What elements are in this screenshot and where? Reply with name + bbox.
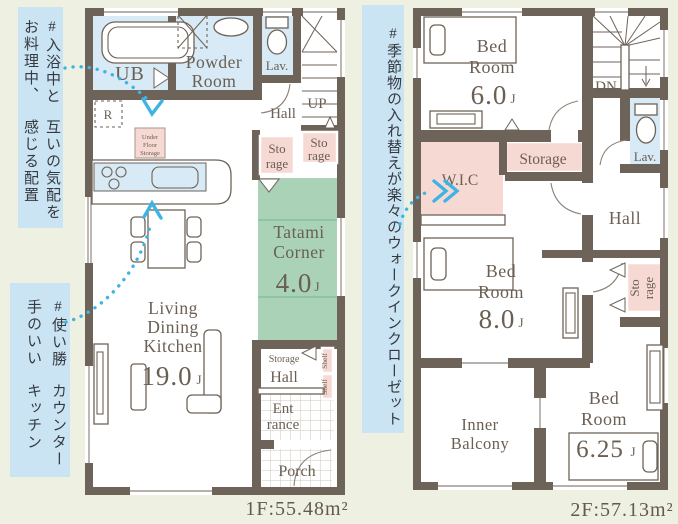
label-ldk-size: 19.0 <box>141 361 192 391</box>
label-storage-a-1: Sto <box>268 141 285 156</box>
dresser2-icon <box>647 345 663 410</box>
label-bed1-unit: J <box>510 91 515 106</box>
label-tatami-unit: J <box>314 279 319 294</box>
label-bed2-size: 8.0 <box>479 304 516 334</box>
label-storage-b-2: rage <box>308 148 331 163</box>
label-bed2-2: Room <box>478 282 524 302</box>
tv-board-icon <box>94 344 108 424</box>
floorplan-1f: UB Powder Room Lav. Hall UP Sto rage Sto… <box>85 8 349 520</box>
label-powder-1: Powder <box>186 52 242 72</box>
caption-1f-area: 1F:55.48m² <box>245 498 348 520</box>
stairs-rail <box>621 45 629 90</box>
label-bed3-2: Room <box>581 409 627 429</box>
label-up: UP <box>307 96 326 112</box>
label-ldk-unit: J <box>196 372 201 387</box>
label-dn: DN <box>595 79 617 95</box>
label-storage-side-2: rage <box>641 277 656 300</box>
label-storage-a-2: rage <box>266 156 289 171</box>
label-tatami-size: 4.0 <box>276 268 313 298</box>
label-tatami-2: Corner <box>273 242 325 262</box>
floorplan-page: #入浴中とお料理中、 互いの気配を感じる配置 #使い勝手のいい カウンターキッチ… <box>0 0 678 524</box>
label-storage-side-1: Sto <box>627 279 642 296</box>
label-bed2-unit: J <box>518 315 523 330</box>
label-balcony-2: Balcony <box>451 434 510 453</box>
label-porch: Porch <box>278 463 315 480</box>
entrance-step <box>258 388 324 394</box>
label-ub: UB <box>115 63 145 85</box>
label-hall-lower: Hall <box>270 369 298 386</box>
label-wic: W.I.C <box>442 172 478 189</box>
label-bed1-size: 6.0 <box>471 80 508 110</box>
label-bed3-size: 6.25 <box>576 436 624 463</box>
toilet-2f-icon <box>635 104 657 143</box>
label-ufs-2: Floor <box>143 142 158 149</box>
label-hall-2f: Hall <box>609 208 641 228</box>
toilet-1f-icon <box>266 17 288 54</box>
label-ufs-1: Under <box>142 134 159 141</box>
sink-icon <box>214 18 248 36</box>
label-bed3-unit: J <box>630 444 635 459</box>
label-storage-side: Sto rage <box>627 277 656 300</box>
label-lav-1f: Lav. <box>266 58 289 73</box>
label-lav-2f: Lav. <box>634 149 657 164</box>
label-ldk-2: Dining <box>147 317 199 337</box>
bathtub-icon <box>102 22 194 63</box>
label-hall-upper: Hall <box>270 106 296 122</box>
caption-2f-area: 2F:57.13m² <box>570 499 673 521</box>
desk-icon <box>430 111 482 128</box>
label-bed1-1: Bed <box>477 36 508 56</box>
label-entrance-1: Ent <box>273 401 295 417</box>
label-entrance-2: rance <box>267 417 300 433</box>
floorplan-drawing: UB Powder Room Lav. Hall UP Sto rage Sto… <box>0 0 678 524</box>
floorplan-2f: Bed Room 6.0 J DN Lav. Storage W.I.C Hal… <box>413 8 674 521</box>
label-ldk-3: Kitchen <box>144 336 203 356</box>
wic-hanger-bar <box>421 215 505 225</box>
label-bed2-1: Bed <box>486 261 517 281</box>
label-hall-storage: Storage <box>269 354 300 365</box>
kitchen-counter-icon <box>92 160 231 204</box>
label-shelf-2: Shelf <box>320 379 329 395</box>
label-ldk-1: Living <box>148 298 198 318</box>
label-bed3-1: Bed <box>589 388 620 408</box>
label-tatami-1: Tatami <box>273 222 324 242</box>
dresser1-icon <box>563 288 578 338</box>
label-storage-2f: Storage <box>519 151 566 168</box>
label-powder-2: Room <box>192 71 237 91</box>
label-fridge: R <box>104 107 113 122</box>
label-bed1-2: Room <box>469 57 515 77</box>
label-shelf-1: Shelf <box>320 353 329 369</box>
label-balcony-1: Inner <box>461 415 498 434</box>
label-ufs-3: Storage <box>140 150 160 157</box>
